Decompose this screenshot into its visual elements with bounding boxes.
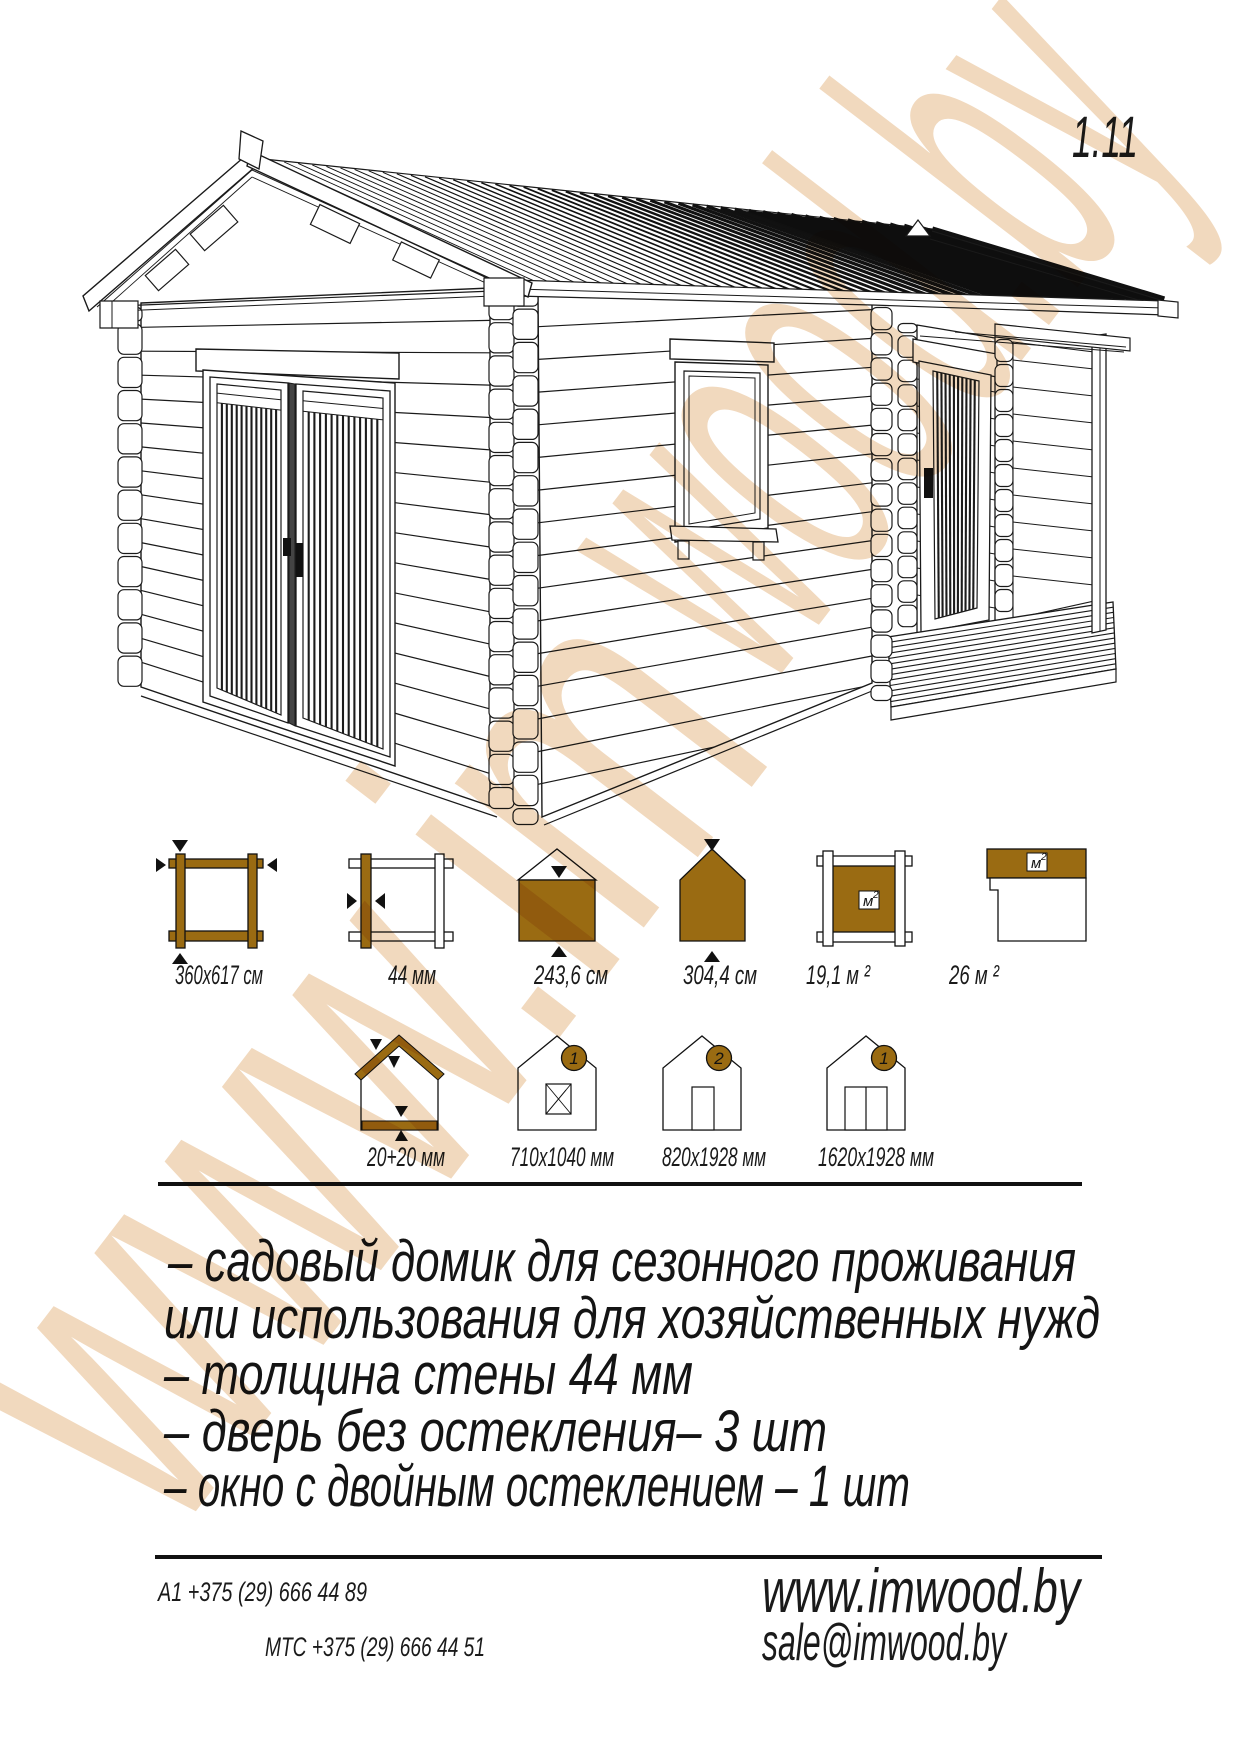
svg-text:2: 2: [713, 1049, 724, 1068]
svg-text:26 м ²: 26 м ²: [948, 960, 999, 990]
svg-text:1: 1: [879, 1049, 888, 1068]
svg-text:м: м: [1031, 855, 1041, 872]
svg-text:1620x1928 мм: 1620x1928 мм: [818, 1142, 934, 1172]
svg-text:2: 2: [1040, 852, 1047, 863]
svg-text:2: 2: [872, 890, 879, 901]
svg-text:м: м: [863, 893, 873, 910]
svg-text:820x1928 мм: 820x1928 мм: [662, 1142, 766, 1172]
svg-text:МТС +375 (29) 666 44 51: МТС +375 (29) 666 44 51: [265, 1632, 485, 1662]
svg-text:19,1 м ²: 19,1 м ²: [806, 960, 871, 990]
svg-text:sale@imwood.by: sale@imwood.by: [762, 1614, 1008, 1672]
